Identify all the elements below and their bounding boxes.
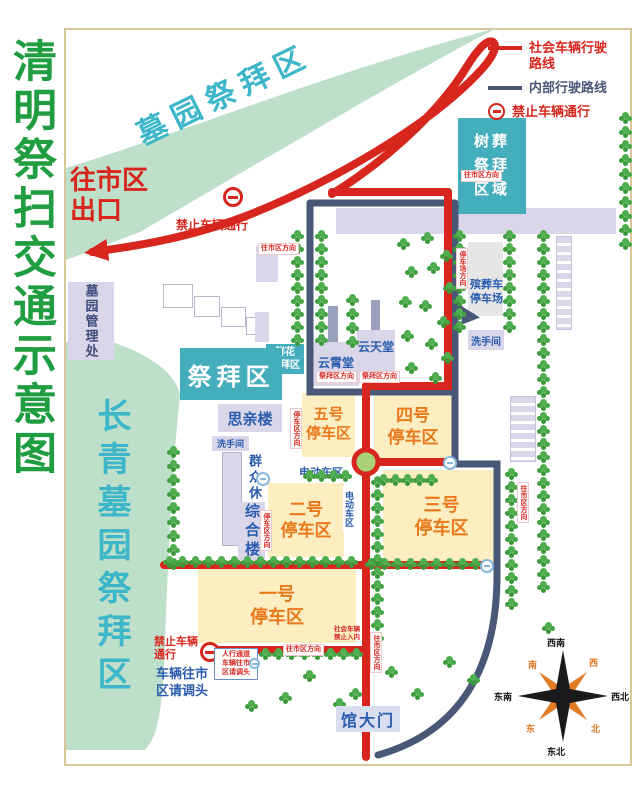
traffic-map: 清明祭扫交通示意图 墓园祭拜区 长青墓园祭拜区 云霄堂 云天堂 鲜花祭拜区 祭拜… xyxy=(0,0,640,792)
route-social xyxy=(92,41,495,757)
legend: 社会车辆行驶路线 内部行驶路线 禁止车辆通行 xyxy=(488,40,636,120)
navy-line-icon xyxy=(488,86,522,90)
compass-rose xyxy=(518,650,608,742)
legend-internal-route: 内部行驶路线 xyxy=(488,80,636,96)
no-entry-icon xyxy=(488,103,505,120)
legend-no-entry: 禁止车辆通行 xyxy=(488,103,636,120)
legend-social-route: 社会车辆行驶路线 xyxy=(488,40,636,73)
route-internal xyxy=(310,203,497,755)
exit-loop-road xyxy=(92,41,495,252)
red-line-icon xyxy=(488,46,522,50)
roundabout xyxy=(354,450,378,474)
